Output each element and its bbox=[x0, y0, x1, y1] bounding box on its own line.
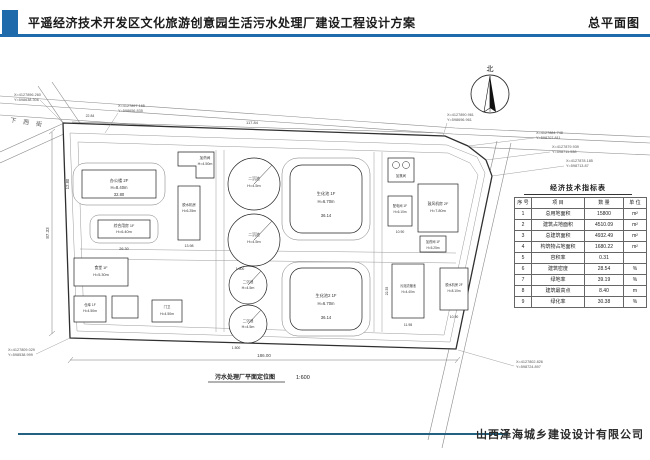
office-dim: 32.80 bbox=[114, 192, 125, 197]
cell-qty: 15800 bbox=[585, 209, 624, 220]
dorm-label: 综合用房 1F bbox=[114, 223, 135, 228]
col-header-qty: 数 量 bbox=[585, 198, 624, 209]
coord-tr1-x: X=4127890.961 bbox=[447, 113, 474, 117]
cell-item: 容积率 bbox=[532, 253, 585, 264]
cell-item: 总建筑面积 bbox=[532, 231, 585, 242]
cell-item: 构筑物占地面积 bbox=[532, 242, 585, 253]
coord-tl2-x: X=4127897.165 bbox=[118, 104, 145, 108]
dorm-dim: 26.30 bbox=[119, 247, 129, 251]
coord-tr1-y: Y=598696.961 bbox=[447, 118, 472, 122]
biopool1-label: 生化池 1F bbox=[317, 190, 336, 197]
biopool2-height: H=6.70m bbox=[317, 301, 335, 306]
gate-building bbox=[152, 300, 182, 322]
north-compass: 北 bbox=[471, 65, 509, 113]
chlorine-tank-icon bbox=[403, 162, 410, 169]
leader bbox=[458, 350, 514, 366]
leader bbox=[492, 166, 564, 176]
coord-bl-x: X=4127809.029 bbox=[8, 348, 35, 352]
aux-building bbox=[112, 296, 138, 318]
cell-qty: 4932.49 bbox=[585, 231, 624, 242]
canteen-building bbox=[74, 258, 128, 286]
col-header-no: 序 号 bbox=[515, 198, 532, 209]
clarifier2-label: 二沉池 bbox=[248, 232, 260, 237]
cell-unit: m bbox=[624, 286, 647, 297]
leader bbox=[36, 338, 70, 354]
cell-item: 绿化率 bbox=[532, 297, 585, 308]
cell-no: 8 bbox=[515, 286, 532, 297]
coord-tr4-y: Y=598713.87 bbox=[566, 164, 589, 168]
cell-no: 9 bbox=[515, 297, 532, 308]
indicator-table-panel: 经济技术指标表 序 号 项 目 数 量 单 位 1 总用地面积 15800 m²… bbox=[514, 183, 642, 308]
cell-item: 绿地率 bbox=[532, 275, 585, 286]
office-dim-depth: 12.80 bbox=[65, 178, 70, 189]
dorm-height: H=6.40m bbox=[116, 230, 132, 234]
dosing2-height: H=5.25m bbox=[426, 246, 439, 250]
leader bbox=[443, 123, 447, 136]
canteen-label: 食堂 1F bbox=[94, 265, 108, 270]
warehouse-label: 仓库 1F bbox=[84, 302, 96, 307]
table-row: 1 总用地面积 15800 m² bbox=[515, 209, 647, 220]
dosing2-label: 加药间 1F bbox=[426, 239, 440, 244]
drawing-scale: 1:600 bbox=[296, 375, 310, 381]
sludge-label: 污泥浓缩池 bbox=[400, 283, 417, 288]
dewater1-building bbox=[178, 186, 200, 240]
biopool2-tank bbox=[290, 268, 362, 330]
cell-unit: m² bbox=[624, 231, 647, 242]
cell-qty: 30.38 bbox=[585, 297, 624, 308]
table-row: 2 建筑占地面积 4510.09 m² bbox=[515, 220, 647, 231]
clarifier3-label: 二沉池 bbox=[243, 279, 254, 284]
coord-tr3-x: X=4127879.939 bbox=[552, 145, 579, 149]
indicator-table: 序 号 项 目 数 量 单 位 1 总用地面积 15800 m² 2 建筑占地面… bbox=[514, 197, 647, 308]
cell-unit: m² bbox=[624, 209, 647, 220]
cell-item: 建筑密度 bbox=[532, 264, 585, 275]
table-row: 8 建筑最高点 8.40 m bbox=[515, 286, 647, 297]
coord-tl2-y: Y=598656.835 bbox=[118, 109, 143, 113]
coord-tl1-y: Y=598638.306 bbox=[14, 98, 39, 102]
north-needle-outline bbox=[484, 76, 490, 112]
coord-br-y: Y=598724.897 bbox=[516, 365, 541, 369]
cell-unit: m² bbox=[624, 242, 647, 253]
cell-unit bbox=[624, 253, 647, 264]
coord-tr2-y: Y=598707.811 bbox=[536, 136, 561, 140]
indicator-table-title: 经济技术指标表 bbox=[524, 183, 632, 195]
road-edge bbox=[0, 133, 66, 163]
cell-qty: 0.31 bbox=[585, 253, 624, 264]
leader bbox=[40, 100, 63, 123]
dewater1-height: H=6.25m bbox=[182, 209, 196, 213]
cell-no: 1 bbox=[515, 209, 532, 220]
power-label: 配电间 1F bbox=[393, 203, 407, 208]
cell-unit: m² bbox=[624, 220, 647, 231]
sludge-height: H=4.40m bbox=[401, 290, 414, 294]
dosing1-label: 加药间 bbox=[200, 155, 211, 160]
table-row: 6 建筑密度 28.54 % bbox=[515, 264, 647, 275]
clarifier3-height: H=4.5m bbox=[242, 286, 255, 290]
cell-qty: 8.40 bbox=[585, 286, 624, 297]
biopool1-dim: 36.14 bbox=[321, 213, 332, 218]
coord-tr3-y: Y=598711.538 bbox=[552, 150, 577, 154]
sludge-dim-depth: 22.35 bbox=[385, 287, 389, 296]
table-row: 3 总建筑面积 4932.49 m² bbox=[515, 231, 647, 242]
cell-no: 7 bbox=[515, 275, 532, 286]
cell-item: 建筑最高点 bbox=[532, 286, 585, 297]
sludge-dim: 11.98 bbox=[404, 323, 412, 327]
cell-qty: 28.54 bbox=[585, 264, 624, 275]
cell-qty: 39.19 bbox=[585, 275, 624, 286]
dewater2-dim: 10.90 bbox=[450, 315, 459, 319]
coord-tr2-x: X=4127884.748 bbox=[536, 131, 563, 135]
cell-unit: % bbox=[624, 275, 647, 286]
clarifier2-radius-label: 1.500 bbox=[236, 267, 245, 271]
blower-building bbox=[418, 184, 458, 232]
biopool2-dim: 36.14 bbox=[321, 315, 332, 320]
leader bbox=[486, 152, 550, 160]
dewater2-height: H=8.10m bbox=[447, 289, 460, 293]
dim-site-width: 186.00 bbox=[257, 353, 271, 358]
dewater1-label: 脱水机房 bbox=[182, 202, 196, 207]
cell-unit: % bbox=[624, 264, 647, 275]
power-height: H=6.10m bbox=[393, 210, 406, 214]
dorm-building bbox=[98, 220, 150, 238]
cell-qty: 4510.09 bbox=[585, 220, 624, 231]
company-name: 山西泽海城乡建设设计有限公司 bbox=[476, 426, 644, 442]
cell-unit: % bbox=[624, 297, 647, 308]
cell-no: 6 bbox=[515, 264, 532, 275]
dewater2-label: 脱水机房 2F bbox=[445, 282, 462, 287]
coord-tr4-x: X=4127878.185 bbox=[566, 159, 593, 163]
footer-rule bbox=[18, 433, 508, 435]
coord-tl1-x: X=4127896.260 bbox=[14, 93, 41, 97]
cell-no: 3 bbox=[515, 231, 532, 242]
warehouse-height: H=4.50m bbox=[83, 309, 97, 313]
coord-br-x: X=4127802.826 bbox=[516, 360, 543, 364]
chlorine-building bbox=[388, 158, 414, 182]
table-header-row: 序 号 项 目 数 量 单 位 bbox=[515, 198, 647, 209]
chlorine-tank-icon bbox=[393, 162, 400, 169]
north-label: 北 bbox=[487, 65, 494, 73]
gate-height: H=4.50m bbox=[160, 312, 174, 316]
drawing-caption: 污水处理厂平面定位图 bbox=[215, 373, 275, 381]
dim-top-offset: 22.84 bbox=[86, 114, 95, 118]
canteen-height: H=5.30m bbox=[93, 273, 109, 277]
biopool1-height: H=6.70m bbox=[317, 199, 335, 204]
leader bbox=[468, 138, 534, 146]
clarifier4-radius-label: 1.500 bbox=[232, 346, 241, 350]
north-needle-icon bbox=[490, 76, 496, 112]
cell-no: 4 bbox=[515, 242, 532, 253]
clarifier4-height: H=4.5m bbox=[242, 325, 255, 329]
office-label: 办公楼 2F bbox=[110, 177, 129, 184]
table-row: 7 绿地率 39.19 % bbox=[515, 275, 647, 286]
office-height: H=8.40m bbox=[110, 185, 128, 190]
chlorine-label: 加氯间 bbox=[396, 173, 407, 178]
cell-item: 总用地面积 bbox=[532, 209, 585, 220]
cell-qty: 1680.22 bbox=[585, 242, 624, 253]
col-header-item: 项 目 bbox=[532, 198, 585, 209]
clarifier2-height: H=4.5m bbox=[247, 240, 260, 244]
blower-height: H=7.80m bbox=[430, 209, 446, 213]
cell-no: 5 bbox=[515, 253, 532, 264]
cell-no: 2 bbox=[515, 220, 532, 231]
road-edge bbox=[0, 124, 62, 152]
biopool2-label: 生化池2 1F bbox=[316, 292, 337, 299]
dewater1-dim: 13.98 bbox=[185, 244, 194, 248]
table-row: 9 绿化率 30.38 % bbox=[515, 297, 647, 308]
gate-label: 门卫 bbox=[164, 304, 171, 309]
dim-top-width: 117.84 bbox=[246, 120, 259, 125]
power-dim: 10.90 bbox=[396, 230, 405, 234]
dosing1-height: H=4.50m bbox=[198, 162, 213, 166]
coord-bl-y: Y=598538.999 bbox=[8, 353, 33, 357]
clarifier1-height: H=4.5m bbox=[247, 184, 260, 188]
clarifier4-label: 二沉池 bbox=[243, 318, 254, 323]
blower-label: 鼓风机房 2F bbox=[428, 201, 449, 206]
col-header-unit: 单 位 bbox=[624, 198, 647, 209]
dim-site-height: 87.33 bbox=[45, 227, 50, 239]
cell-item: 建筑占地面积 bbox=[532, 220, 585, 231]
table-row: 5 容积率 0.31 bbox=[515, 253, 647, 264]
table-row: 4 构筑物占地面积 1680.22 m² bbox=[515, 242, 647, 253]
clarifier1-label: 二沉池 bbox=[248, 176, 260, 181]
